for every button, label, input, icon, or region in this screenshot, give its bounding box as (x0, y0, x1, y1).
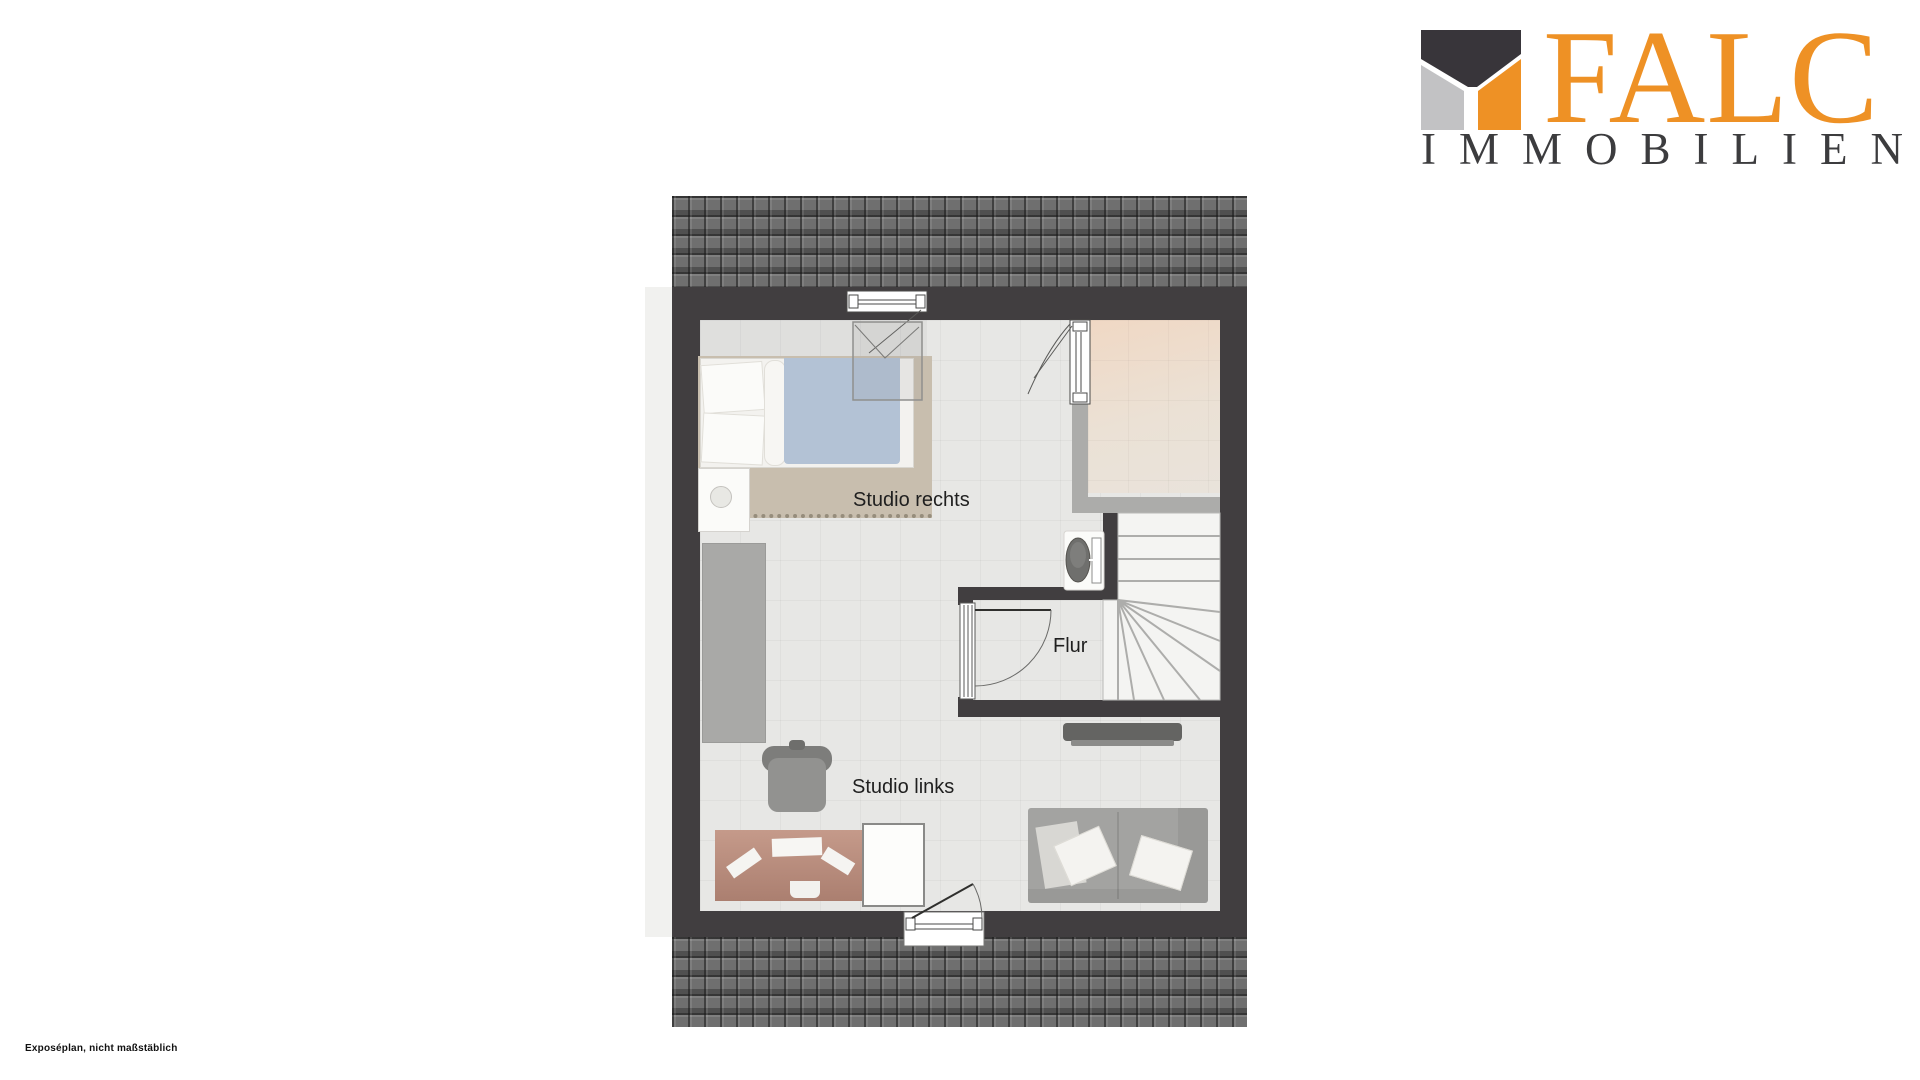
disclaimer-text: Exposéplan, nicht maßstäblich (25, 1043, 178, 1054)
logo-subtitle-text: IMMOBILIEN (1421, 127, 1920, 172)
skylight (853, 322, 922, 400)
page: FALC IMMOBILIEN (0, 0, 1920, 1080)
toilet-icon (1064, 531, 1104, 590)
eave-shadow (645, 287, 672, 937)
flur-door (960, 603, 1051, 699)
entry-door (904, 884, 984, 946)
room-label-flur: Flur (1053, 636, 1087, 656)
plan-symbols (672, 196, 1247, 1027)
room-label-studio-links: Studio links (852, 777, 954, 797)
floor-plan: Studio rechts Flur Studio links (672, 196, 1247, 1027)
staircase (1103, 513, 1220, 700)
falc-logo-mark-icon (1421, 30, 1521, 130)
side-window (1028, 320, 1090, 404)
room-label-studio-rechts: Studio rechts (853, 490, 970, 510)
